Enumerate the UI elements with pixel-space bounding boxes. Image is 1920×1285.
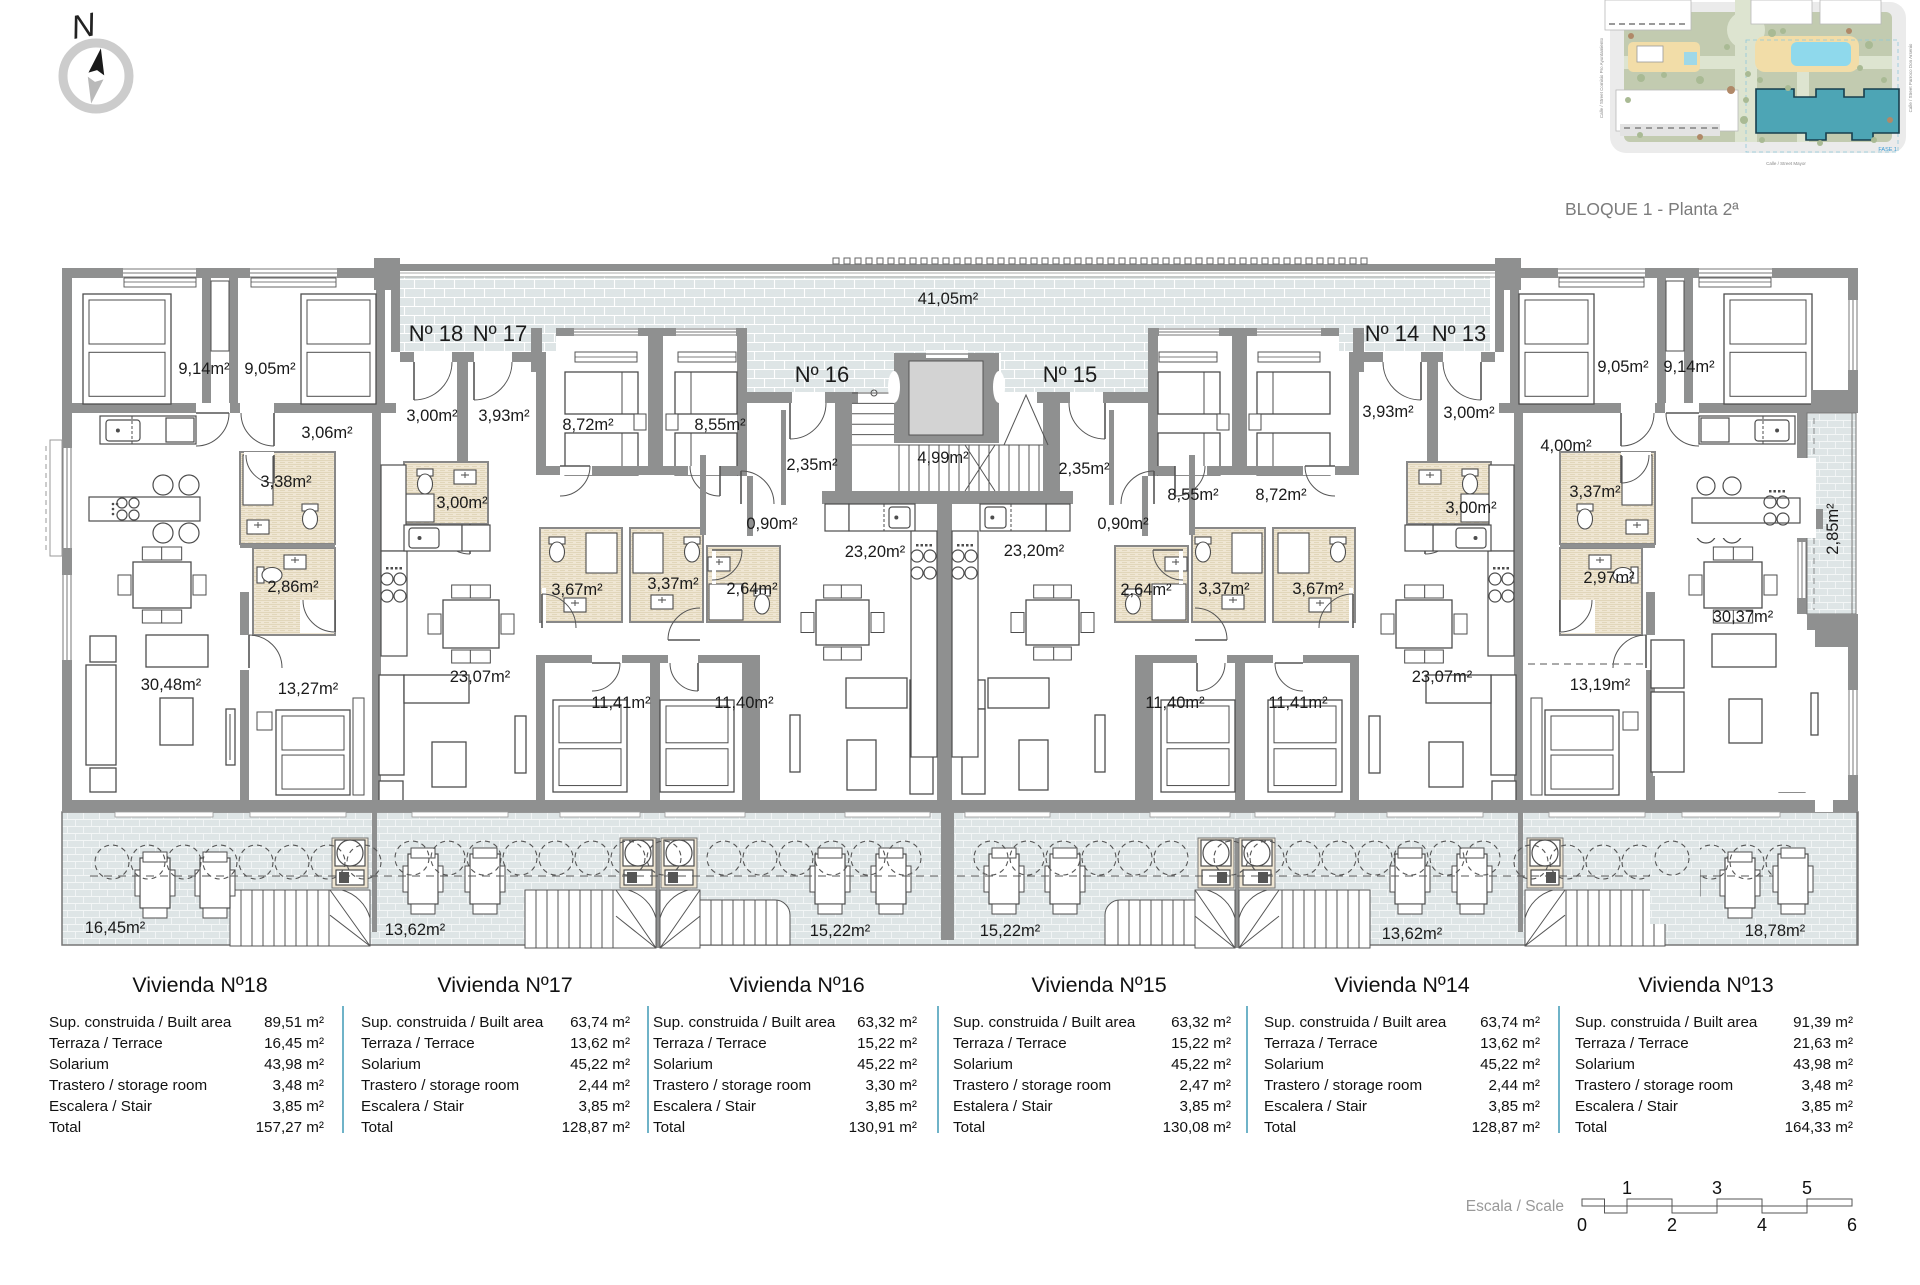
- svg-text:16,45m²: 16,45m²: [85, 919, 146, 937]
- svg-text:Terraza / Terrace: Terraza / Terrace: [653, 1035, 767, 1052]
- svg-text:Nº 14: Nº 14: [1365, 321, 1420, 346]
- svg-text:Trastero / storage room: Trastero / storage room: [1264, 1077, 1422, 1094]
- svg-text:Calle / Street Parroco Don Ar: Calle / Street Parroco Don Arsenio: [1908, 43, 1913, 112]
- svg-text:11,41m²: 11,41m²: [591, 694, 651, 712]
- svg-text:130,08 m²: 130,08 m²: [1163, 1119, 1231, 1136]
- svg-text:Total: Total: [49, 1119, 81, 1136]
- svg-text:2,86m²: 2,86m²: [267, 578, 319, 596]
- svg-text:Solarium: Solarium: [49, 1056, 109, 1073]
- svg-text:2,47 m²: 2,47 m²: [1180, 1077, 1232, 1094]
- svg-text:164,33 m²: 164,33 m²: [1785, 1119, 1853, 1136]
- svg-text:BLOQUE 1 - Planta 2ª: BLOQUE 1 - Planta 2ª: [1565, 199, 1739, 219]
- svg-text:3,85 m²: 3,85 m²: [1489, 1098, 1541, 1115]
- svg-text:Estalera / Stair: Estalera / Stair: [953, 1098, 1053, 1115]
- svg-text:9,14m²: 9,14m²: [178, 360, 230, 378]
- svg-text:30,37m²: 30,37m²: [1713, 608, 1774, 626]
- svg-text:6: 6: [1847, 1215, 1857, 1235]
- svg-text:Sup. construida / Built area: Sup. construida / Built area: [361, 1014, 544, 1031]
- svg-text:3,93m²: 3,93m²: [478, 407, 530, 425]
- svg-text:Total: Total: [1264, 1119, 1296, 1136]
- svg-text:45,22 m²: 45,22 m²: [1171, 1056, 1231, 1073]
- svg-text:Nº 16: Nº 16: [795, 362, 850, 387]
- svg-text:3,48 m²: 3,48 m²: [1802, 1077, 1854, 1094]
- svg-text:2,35m²: 2,35m²: [1058, 460, 1110, 478]
- svg-text:Calle / Street Comisio Pro Ay: Calle / Street Comisio Pro Ayuntamiento: [1599, 37, 1604, 118]
- svg-text:157,27 m²: 157,27 m²: [256, 1119, 324, 1136]
- svg-text:11,40m²: 11,40m²: [714, 694, 774, 712]
- svg-text:89,51 m²: 89,51 m²: [264, 1014, 324, 1031]
- svg-text:15,22m²: 15,22m²: [980, 922, 1041, 940]
- svg-text:Solarium: Solarium: [1264, 1056, 1324, 1073]
- svg-text:Escalera / Stair: Escalera / Stair: [1575, 1098, 1678, 1115]
- svg-text:3,37m²: 3,37m²: [647, 575, 699, 593]
- svg-text:13,62 m²: 13,62 m²: [1480, 1035, 1540, 1052]
- svg-text:Total: Total: [953, 1119, 985, 1136]
- svg-text:63,32 m²: 63,32 m²: [857, 1014, 917, 1031]
- svg-text:Escala / Scale: Escala / Scale: [1466, 1198, 1564, 1215]
- svg-text:Terraza / Terrace: Terraza / Terrace: [361, 1035, 475, 1052]
- svg-text:Escalera / Stair: Escalera / Stair: [1264, 1098, 1367, 1115]
- svg-text:11,41m²: 11,41m²: [1268, 694, 1328, 712]
- svg-text:3,30 m²: 3,30 m²: [866, 1077, 918, 1094]
- svg-text:Total: Total: [1575, 1119, 1607, 1136]
- svg-text:Sup. construida / Built area: Sup. construida / Built area: [49, 1014, 232, 1031]
- svg-text:3,00m²: 3,00m²: [406, 407, 458, 425]
- svg-text:23,20m²: 23,20m²: [845, 543, 906, 561]
- svg-text:3,85 m²: 3,85 m²: [866, 1098, 918, 1115]
- svg-text:3,00m²: 3,00m²: [436, 494, 488, 512]
- svg-text:18,78m²: 18,78m²: [1745, 922, 1806, 940]
- svg-text:Vivienda Nº18: Vivienda Nº18: [132, 973, 267, 997]
- svg-text:Terraza / Terrace: Terraza / Terrace: [1264, 1035, 1378, 1052]
- svg-text:Terraza / Terrace: Terraza / Terrace: [49, 1035, 163, 1052]
- svg-text:Solarium: Solarium: [953, 1056, 1013, 1073]
- svg-text:63,32 m²: 63,32 m²: [1171, 1014, 1231, 1031]
- svg-text:15,22m²: 15,22m²: [810, 922, 871, 940]
- svg-text:2,35m²: 2,35m²: [786, 456, 838, 474]
- svg-text:3,00m²: 3,00m²: [1443, 404, 1495, 422]
- svg-text:Trastero / storage room: Trastero / storage room: [49, 1077, 207, 1094]
- svg-text:4,99m²: 4,99m²: [917, 449, 969, 467]
- svg-text:13,62 m²: 13,62 m²: [570, 1035, 630, 1052]
- svg-text:Sup. construida / Built area: Sup. construida / Built area: [953, 1014, 1136, 1031]
- svg-text:Vivienda Nº13: Vivienda Nº13: [1638, 973, 1773, 997]
- svg-text:3,37m²: 3,37m²: [1569, 483, 1621, 501]
- svg-text:13,62m²: 13,62m²: [1382, 925, 1443, 943]
- svg-text:45,22 m²: 45,22 m²: [857, 1056, 917, 1073]
- svg-text:Trastero / storage room: Trastero / storage room: [653, 1077, 811, 1094]
- svg-text:91,39 m²: 91,39 m²: [1793, 1014, 1853, 1031]
- svg-text:2,44 m²: 2,44 m²: [1489, 1077, 1541, 1094]
- svg-text:3,48 m²: 3,48 m²: [273, 1077, 325, 1094]
- svg-text:Escalera / Stair: Escalera / Stair: [361, 1098, 464, 1115]
- svg-text:8,72m²: 8,72m²: [562, 416, 614, 434]
- svg-text:9,05m²: 9,05m²: [1597, 358, 1649, 376]
- svg-text:23,20m²: 23,20m²: [1004, 542, 1065, 560]
- svg-text:43,98 m²: 43,98 m²: [1793, 1056, 1853, 1073]
- svg-text:15,22 m²: 15,22 m²: [1171, 1035, 1231, 1052]
- svg-text:3,67m²: 3,67m²: [551, 581, 603, 599]
- svg-text:16,45 m²: 16,45 m²: [264, 1035, 324, 1052]
- svg-text:45,22 m²: 45,22 m²: [570, 1056, 630, 1073]
- svg-text:Terraza / Terrace: Terraza / Terrace: [1575, 1035, 1689, 1052]
- svg-text:Solarium: Solarium: [361, 1056, 421, 1073]
- svg-text:0,90m²: 0,90m²: [746, 515, 798, 533]
- svg-text:3,85 m²: 3,85 m²: [579, 1098, 631, 1115]
- svg-text:128,87 m²: 128,87 m²: [562, 1119, 630, 1136]
- svg-text:3: 3: [1712, 1178, 1722, 1198]
- svg-text:3,93m²: 3,93m²: [1362, 403, 1414, 421]
- svg-text:Vivienda Nº14: Vivienda Nº14: [1334, 973, 1469, 997]
- svg-text:23,07m²: 23,07m²: [1412, 668, 1473, 686]
- svg-text:Nº 18: Nº 18: [409, 321, 464, 346]
- svg-text:4,00m²: 4,00m²: [1540, 437, 1592, 455]
- svg-text:Nº 13: Nº 13: [1432, 321, 1487, 346]
- svg-text:0: 0: [1577, 1215, 1587, 1235]
- svg-text:Vivienda Nº15: Vivienda Nº15: [1031, 973, 1166, 997]
- svg-text:3,85 m²: 3,85 m²: [273, 1098, 325, 1115]
- svg-text:13,27m²: 13,27m²: [278, 680, 339, 698]
- svg-text:2,44 m²: 2,44 m²: [579, 1077, 631, 1094]
- svg-text:Solarium: Solarium: [1575, 1056, 1635, 1073]
- svg-text:1: 1: [1622, 1178, 1632, 1198]
- svg-text:9,05m²: 9,05m²: [244, 360, 296, 378]
- svg-text:8,72m²: 8,72m²: [1255, 486, 1307, 504]
- svg-text:2,64m²: 2,64m²: [726, 580, 778, 598]
- svg-text:30,48m²: 30,48m²: [141, 676, 202, 694]
- svg-text:Sup. construida / Built area: Sup. construida / Built area: [1264, 1014, 1447, 1031]
- svg-text:3,37m²: 3,37m²: [1198, 580, 1250, 598]
- svg-text:130,91 m²: 130,91 m²: [849, 1119, 917, 1136]
- svg-text:9,14m²: 9,14m²: [1663, 358, 1715, 376]
- svg-text:3,00m²: 3,00m²: [1445, 499, 1497, 517]
- svg-text:63,74 m²: 63,74 m²: [1480, 1014, 1540, 1031]
- svg-text:Nº 15: Nº 15: [1043, 362, 1098, 387]
- svg-text:Trastero / storage room: Trastero / storage room: [953, 1077, 1111, 1094]
- svg-text:45,22 m²: 45,22 m²: [1480, 1056, 1540, 1073]
- svg-text:Escalera / Stair: Escalera / Stair: [49, 1098, 152, 1115]
- svg-text:2,64m²: 2,64m²: [1120, 581, 1172, 599]
- svg-text:8,55m²: 8,55m²: [1167, 486, 1219, 504]
- svg-text:Escalera / Stair: Escalera / Stair: [653, 1098, 756, 1115]
- svg-text:Sup. construida / Built area: Sup. construida / Built area: [653, 1014, 836, 1031]
- svg-text:2,85m²: 2,85m²: [1824, 503, 1842, 555]
- svg-text:41,05m²: 41,05m²: [918, 290, 979, 308]
- svg-text:Vivienda Nº16: Vivienda Nº16: [729, 973, 864, 997]
- svg-text:FASE 1: FASE 1: [1878, 147, 1897, 153]
- svg-text:5: 5: [1802, 1178, 1812, 1198]
- svg-text:3,06m²: 3,06m²: [301, 424, 353, 442]
- svg-text:3,38m²: 3,38m²: [260, 473, 312, 491]
- svg-text:3,85 m²: 3,85 m²: [1180, 1098, 1232, 1115]
- svg-text:13,19m²: 13,19m²: [1570, 676, 1631, 694]
- svg-text:63,74 m²: 63,74 m²: [570, 1014, 630, 1031]
- svg-text:11,40m²: 11,40m²: [1145, 694, 1205, 712]
- svg-text:Vivienda Nº17: Vivienda Nº17: [437, 973, 572, 997]
- svg-text:3,85 m²: 3,85 m²: [1802, 1098, 1854, 1115]
- svg-text:43,98 m²: 43,98 m²: [264, 1056, 324, 1073]
- svg-text:21,63 m²: 21,63 m²: [1793, 1035, 1853, 1052]
- svg-text:Terraza / Terrace: Terraza / Terrace: [953, 1035, 1067, 1052]
- svg-text:Trastero / storage room: Trastero / storage room: [1575, 1077, 1733, 1094]
- svg-text:Total: Total: [361, 1119, 393, 1136]
- svg-text:0,90m²: 0,90m²: [1097, 515, 1149, 533]
- svg-text:128,87 m²: 128,87 m²: [1472, 1119, 1540, 1136]
- svg-text:Sup. construida / Built area: Sup. construida / Built area: [1575, 1014, 1758, 1031]
- svg-text:Solarium: Solarium: [653, 1056, 713, 1073]
- svg-text:Calle / Street Mayor: Calle / Street Mayor: [1766, 161, 1806, 166]
- svg-text:8,55m²: 8,55m²: [694, 416, 746, 434]
- svg-text:3,67m²: 3,67m²: [1292, 580, 1344, 598]
- svg-text:2: 2: [1667, 1215, 1677, 1235]
- svg-text:4: 4: [1757, 1215, 1767, 1235]
- svg-text:Trastero / storage room: Trastero / storage room: [361, 1077, 519, 1094]
- svg-text:Nº 17: Nº 17: [473, 321, 528, 346]
- svg-text:23,07m²: 23,07m²: [450, 668, 511, 686]
- svg-text:15,22 m²: 15,22 m²: [857, 1035, 917, 1052]
- svg-text:2,97m²: 2,97m²: [1583, 569, 1635, 587]
- svg-text:Total: Total: [653, 1119, 685, 1136]
- svg-text:13,62m²: 13,62m²: [385, 921, 446, 939]
